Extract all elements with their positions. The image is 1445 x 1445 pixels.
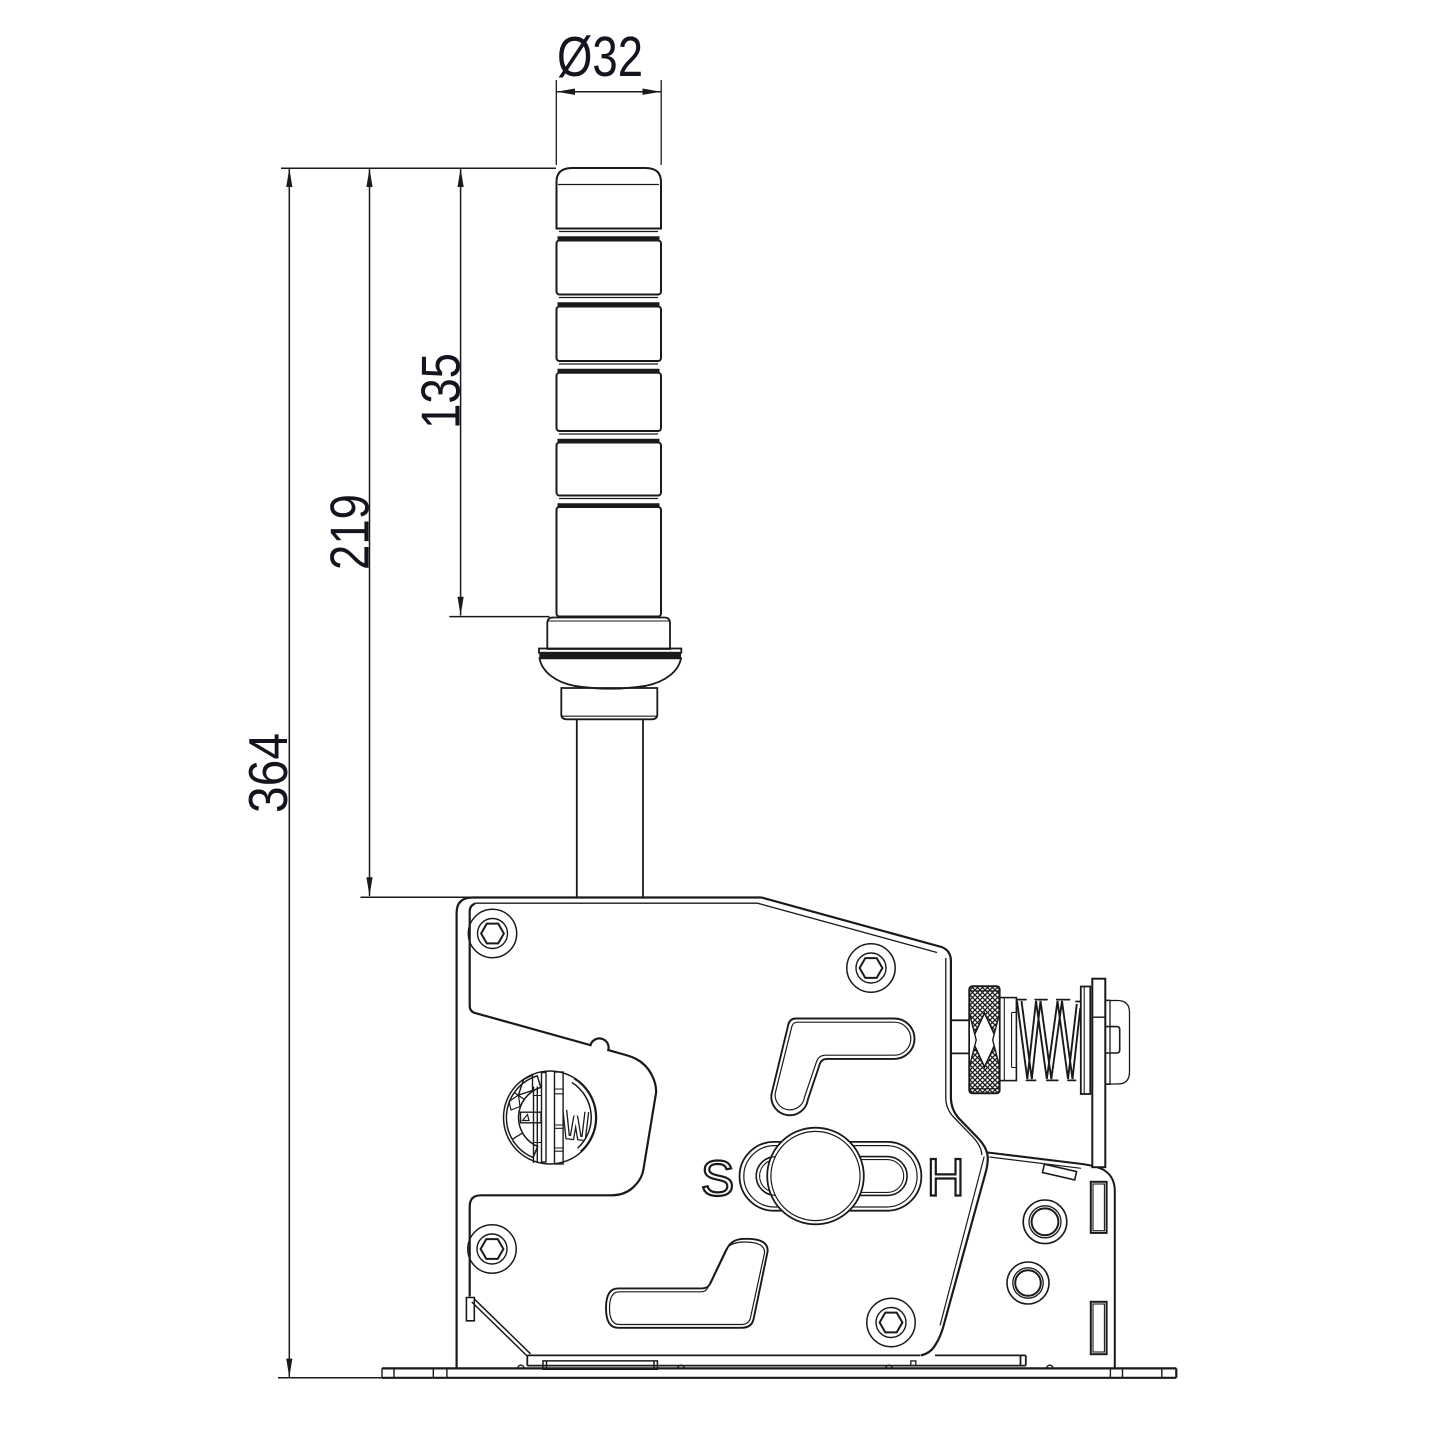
svg-text:135: 135 <box>410 353 472 429</box>
svg-text:S: S <box>701 1150 734 1206</box>
svg-text:Ø32: Ø32 <box>557 25 643 89</box>
svg-text:219: 219 <box>319 494 381 570</box>
svg-text:364: 364 <box>237 733 299 813</box>
svg-text:H: H <box>927 1148 965 1207</box>
